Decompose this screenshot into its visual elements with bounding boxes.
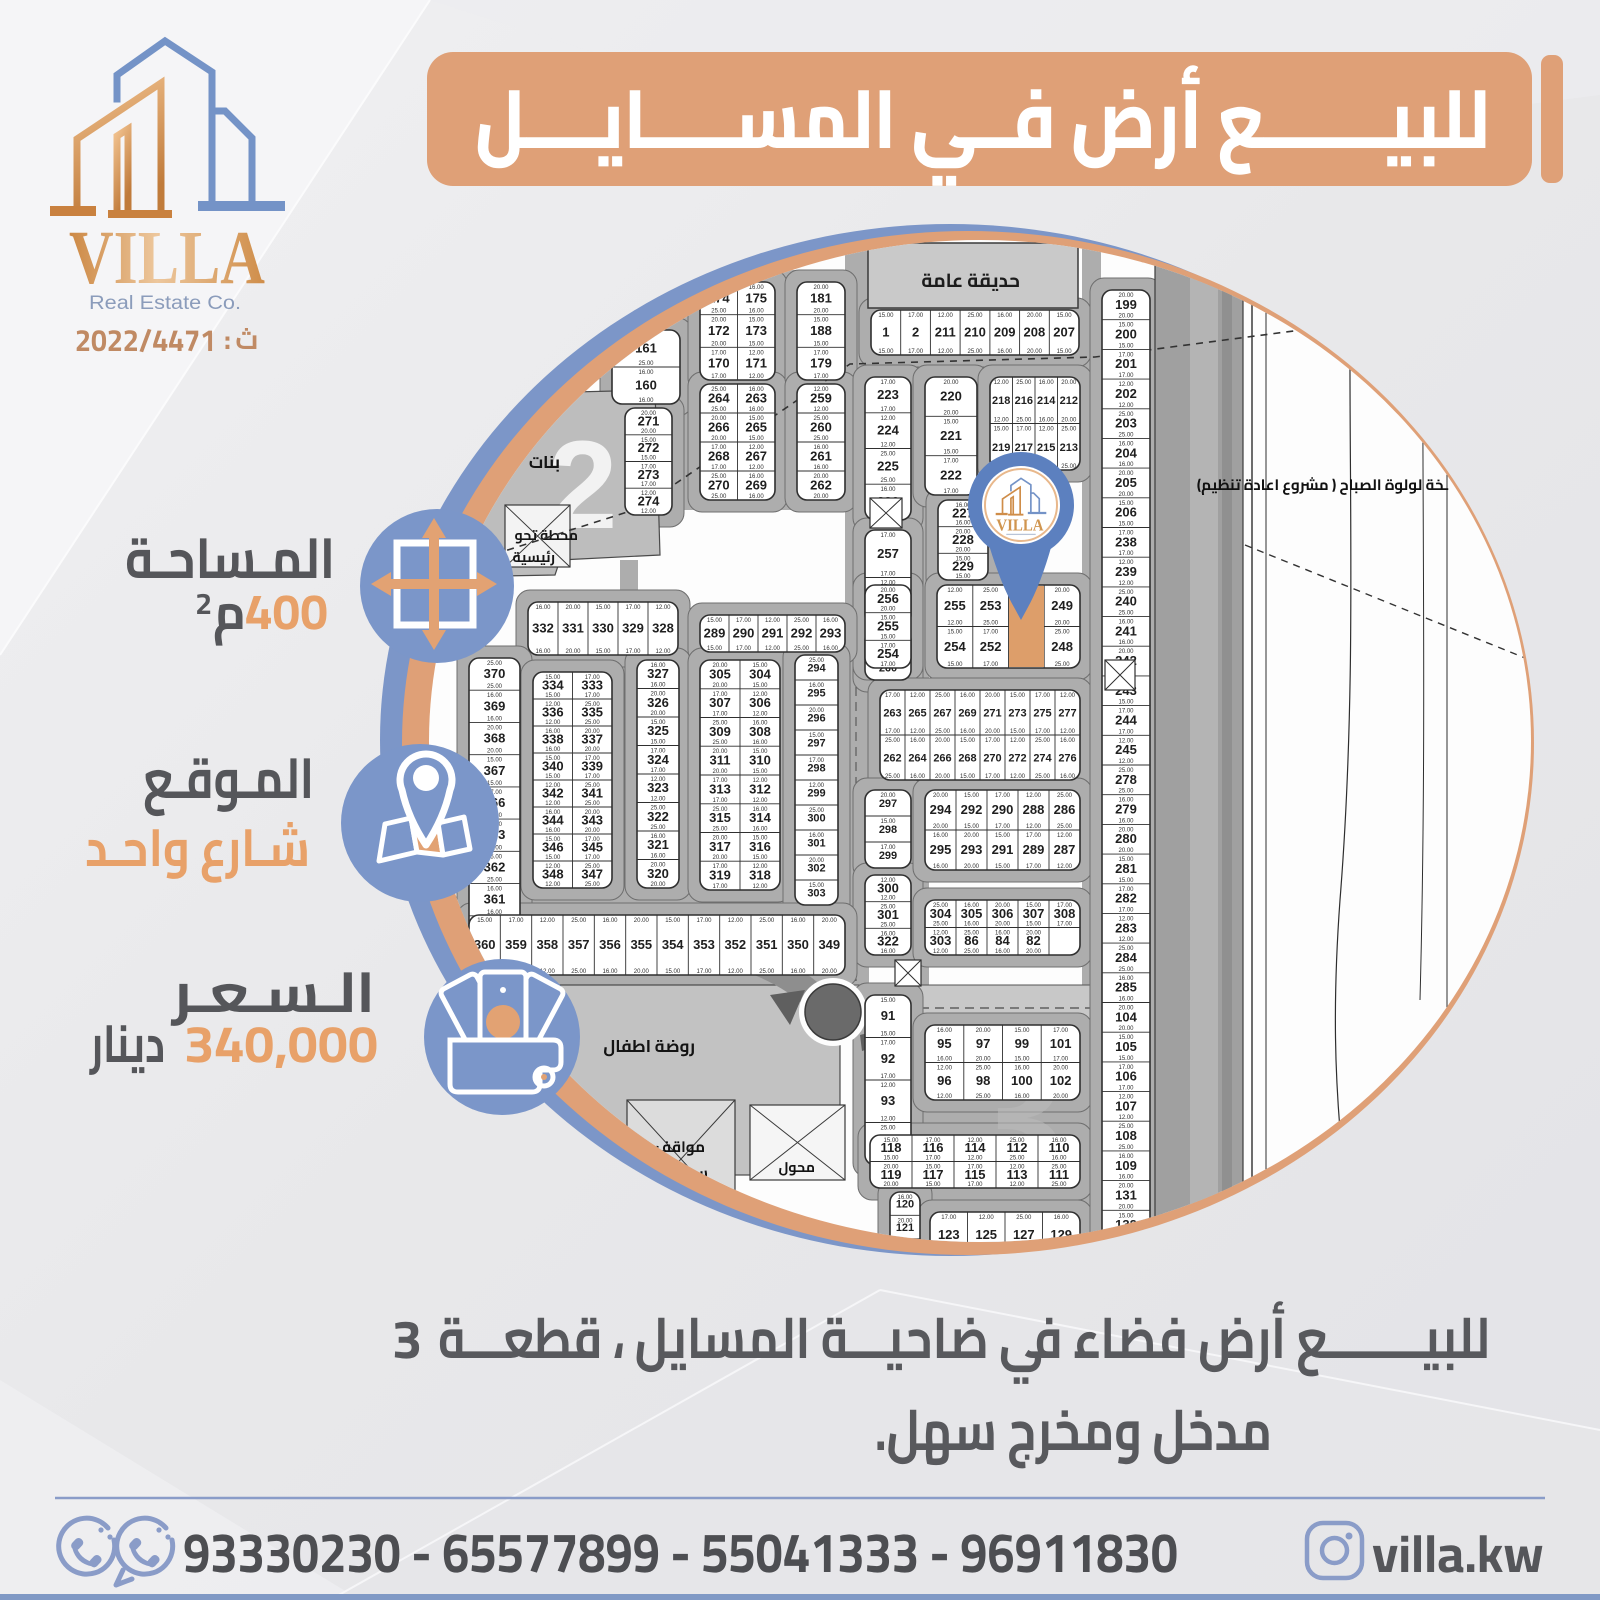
svg-text:289: 289 [1023, 842, 1045, 857]
svg-text:16.00: 16.00 [790, 969, 806, 975]
svg-text:16.00: 16.00 [960, 693, 976, 699]
svg-text:17.00: 17.00 [880, 533, 896, 539]
svg-text:15.00: 15.00 [813, 341, 829, 347]
svg-text:25.00: 25.00 [794, 618, 810, 624]
svg-text:17.00: 17.00 [813, 374, 829, 380]
svg-text:15.00: 15.00 [964, 793, 980, 799]
svg-text:12.00: 12.00 [938, 349, 954, 355]
svg-text:205: 205 [1115, 475, 1137, 490]
svg-text:25.00: 25.00 [1118, 1145, 1134, 1151]
svg-text:25.00: 25.00 [967, 349, 983, 355]
svg-text:123: 123 [938, 1227, 960, 1242]
svg-text:25.00: 25.00 [885, 738, 901, 744]
svg-text:16.00: 16.00 [933, 833, 949, 839]
svg-text:266: 266 [933, 753, 951, 765]
svg-text:16.00: 16.00 [752, 807, 768, 813]
svg-text:15.00: 15.00 [960, 738, 976, 744]
svg-text:353: 353 [693, 937, 715, 952]
svg-text:15.00: 15.00 [878, 349, 894, 355]
svg-text:16.00: 16.00 [995, 949, 1011, 955]
svg-text:15.00: 15.00 [1118, 1056, 1134, 1062]
svg-text:16.00: 16.00 [1118, 1175, 1134, 1181]
svg-text:209: 209 [994, 325, 1016, 340]
svg-text:25.00: 25.00 [964, 931, 980, 937]
svg-text:16.00: 16.00 [1118, 462, 1134, 468]
svg-text:VILLA: VILLA [996, 516, 1043, 535]
svg-text:12.00: 12.00 [1026, 793, 1042, 799]
svg-text:15.00: 15.00 [1118, 323, 1134, 329]
svg-text:12.00: 12.00 [809, 783, 825, 789]
svg-text:20.00: 20.00 [1118, 492, 1134, 498]
svg-text:16.00: 16.00 [933, 864, 949, 870]
svg-text:16.00: 16.00 [880, 949, 896, 955]
svg-text:17.00: 17.00 [943, 459, 959, 465]
svg-text:245: 245 [1115, 742, 1137, 757]
svg-text:16.00: 16.00 [487, 887, 503, 893]
svg-text:12.00: 12.00 [765, 618, 781, 624]
svg-text:15.00: 15.00 [1014, 1057, 1030, 1063]
svg-text:367: 367 [484, 763, 506, 778]
svg-text:12.00: 12.00 [749, 350, 765, 356]
svg-text:16.00: 16.00 [1118, 1154, 1134, 1160]
svg-text:25.00: 25.00 [712, 807, 728, 813]
svg-text:15.00: 15.00 [1118, 343, 1134, 349]
svg-text:160: 160 [635, 378, 657, 393]
svg-text:257: 257 [877, 546, 899, 561]
svg-text:17.00: 17.00 [880, 572, 896, 578]
svg-text:16.00: 16.00 [752, 721, 768, 727]
svg-text:17.00: 17.00 [696, 918, 712, 924]
svg-text:15.00: 15.00 [545, 675, 561, 681]
svg-text:15.00: 15.00 [707, 618, 723, 624]
svg-text:20.00: 20.00 [955, 547, 971, 553]
svg-text:15.00: 15.00 [925, 1182, 941, 1188]
svg-text:211: 211 [935, 325, 956, 340]
svg-text:25.00: 25.00 [1057, 824, 1073, 830]
svg-text:25.00: 25.00 [983, 621, 999, 627]
svg-text:292: 292 [961, 802, 983, 817]
svg-text:15.00: 15.00 [925, 1165, 941, 1171]
svg-text:12.00: 12.00 [1009, 1182, 1025, 1188]
svg-text:15.00: 15.00 [955, 556, 971, 562]
svg-text:16.00: 16.00 [1118, 976, 1134, 982]
svg-text:16.00: 16.00 [1060, 774, 1076, 780]
svg-text:16.00: 16.00 [487, 716, 503, 722]
svg-text:12.00: 12.00 [880, 878, 896, 884]
svg-text:12.00: 12.00 [910, 729, 926, 735]
svg-text:17.00: 17.00 [880, 1041, 896, 1047]
svg-text:20.00: 20.00 [712, 683, 728, 689]
svg-text:17.00: 17.00 [1057, 903, 1073, 909]
svg-text:291: 291 [992, 842, 1014, 857]
svg-text:272: 272 [1008, 753, 1026, 765]
svg-text:299: 299 [807, 788, 825, 800]
svg-text:20.00: 20.00 [809, 858, 825, 864]
svg-text:285: 285 [1115, 980, 1137, 995]
svg-text:12.00: 12.00 [1118, 916, 1134, 922]
svg-text:131: 131 [1115, 1188, 1137, 1203]
svg-text:15.00: 15.00 [883, 1156, 899, 1162]
svg-text:17.00: 17.00 [941, 1215, 957, 1221]
svg-text:12.00: 12.00 [752, 864, 768, 870]
svg-text:15.00: 15.00 [994, 427, 1010, 433]
svg-text:17.00: 17.00 [712, 884, 728, 890]
svg-text:16.00: 16.00 [813, 445, 829, 451]
svg-text:17.00: 17.00 [885, 693, 901, 699]
svg-text:20.00: 20.00 [880, 607, 896, 613]
svg-text:292: 292 [791, 626, 813, 641]
svg-text:16.00: 16.00 [749, 387, 765, 393]
svg-text:20.00: 20.00 [1118, 471, 1134, 477]
svg-text:15.00: 15.00 [883, 1138, 899, 1144]
svg-text:282: 282 [1115, 891, 1137, 906]
svg-text:25.00: 25.00 [638, 361, 654, 367]
svg-text:12.00: 12.00 [1118, 560, 1134, 566]
svg-text:20.00: 20.00 [712, 769, 728, 775]
svg-text:15.00: 15.00 [665, 918, 681, 924]
svg-text:127: 127 [1013, 1227, 1035, 1242]
svg-text:170: 170 [708, 356, 730, 371]
svg-text:25.00: 25.00 [880, 1126, 896, 1132]
svg-text:265: 265 [908, 708, 926, 720]
svg-text:207: 207 [1053, 325, 1075, 340]
svg-text:16.00: 16.00 [937, 1028, 953, 1034]
svg-text:20.00: 20.00 [933, 793, 949, 799]
svg-text:369: 369 [484, 698, 506, 713]
svg-text:100: 100 [1011, 1073, 1033, 1088]
svg-text:12.00: 12.00 [994, 380, 1010, 386]
svg-text:15.00: 15.00 [752, 836, 768, 842]
svg-text:173: 173 [745, 323, 767, 338]
svg-text:199: 199 [1115, 297, 1137, 312]
svg-text:20.00: 20.00 [995, 922, 1011, 928]
svg-text:25.00: 25.00 [794, 646, 810, 652]
svg-text:25.00: 25.00 [585, 783, 601, 789]
svg-text:15.00: 15.00 [880, 616, 896, 622]
svg-text:248: 248 [1051, 639, 1073, 654]
svg-text:20.00: 20.00 [1118, 293, 1134, 299]
svg-text:355: 355 [630, 937, 652, 952]
svg-text:25.00: 25.00 [1051, 1182, 1067, 1188]
svg-text:25.00: 25.00 [933, 903, 949, 909]
svg-text:252: 252 [980, 639, 1002, 654]
svg-text:222: 222 [940, 467, 962, 482]
svg-text:275: 275 [1033, 708, 1051, 720]
svg-text:20.00: 20.00 [487, 749, 503, 755]
svg-text:12.00: 12.00 [540, 918, 556, 924]
svg-text:16.00: 16.00 [545, 747, 561, 753]
svg-text:17.00: 17.00 [1053, 1028, 1069, 1034]
svg-text:15.00: 15.00 [1010, 693, 1026, 699]
svg-text:12.00: 12.00 [1026, 824, 1042, 830]
svg-text:12.00: 12.00 [728, 969, 744, 975]
svg-text:278: 278 [1115, 772, 1137, 787]
svg-text:20.00: 20.00 [565, 649, 581, 655]
svg-text:17.00: 17.00 [712, 864, 728, 870]
svg-text:213: 213 [1060, 442, 1078, 454]
svg-text:16.00: 16.00 [964, 903, 980, 909]
svg-text:203: 203 [1115, 416, 1137, 431]
svg-text:12.00: 12.00 [641, 491, 657, 497]
svg-text:17.00: 17.00 [813, 350, 829, 356]
svg-text:25.00: 25.00 [585, 702, 601, 708]
svg-text:20.00: 20.00 [565, 605, 581, 611]
svg-text:264: 264 [908, 753, 927, 765]
svg-text:293: 293 [961, 842, 983, 857]
svg-text:20.00: 20.00 [1118, 827, 1134, 833]
svg-text:17.00: 17.00 [712, 798, 728, 804]
svg-text:25.00: 25.00 [571, 969, 587, 975]
svg-text:286: 286 [1054, 802, 1076, 817]
svg-text:25.00: 25.00 [1055, 630, 1071, 636]
svg-text:171: 171 [745, 356, 767, 371]
svg-text:20.00: 20.00 [883, 1165, 899, 1171]
svg-text:20.00: 20.00 [897, 1218, 913, 1224]
svg-text:25.00: 25.00 [935, 693, 951, 699]
svg-text:25.00: 25.00 [1051, 1165, 1067, 1171]
svg-text:25.00: 25.00 [571, 918, 587, 924]
svg-text:20.00: 20.00 [711, 416, 727, 422]
svg-text:20.00: 20.00 [964, 833, 980, 839]
svg-text:300: 300 [807, 813, 825, 825]
svg-text:17.00: 17.00 [508, 918, 524, 924]
svg-text:220: 220 [940, 389, 962, 404]
svg-text:17.00: 17.00 [712, 712, 728, 718]
svg-text:17.00: 17.00 [585, 855, 601, 861]
svg-text:12.00: 12.00 [752, 692, 768, 698]
svg-text:15.00: 15.00 [1057, 349, 1073, 355]
svg-text:240: 240 [1115, 594, 1137, 609]
svg-text:25.00: 25.00 [711, 474, 727, 480]
svg-text:12.00: 12.00 [967, 1156, 983, 1162]
svg-text:17.00: 17.00 [1016, 427, 1032, 433]
svg-text:20.00: 20.00 [650, 692, 666, 698]
svg-text:25.00: 25.00 [935, 729, 951, 735]
svg-text:20.00: 20.00 [1053, 1066, 1069, 1072]
svg-text:17.00: 17.00 [983, 662, 999, 668]
svg-text:12.00: 12.00 [1010, 774, 1026, 780]
svg-text:210: 210 [964, 325, 986, 340]
svg-text:17.00: 17.00 [1118, 1065, 1134, 1071]
svg-text:16.00: 16.00 [1014, 1094, 1030, 1100]
svg-text:17.00: 17.00 [1118, 551, 1134, 557]
svg-text:25.00: 25.00 [976, 1066, 992, 1072]
svg-text:16.00: 16.00 [749, 474, 765, 480]
svg-text:17.00: 17.00 [1057, 922, 1073, 928]
svg-text:25.00: 25.00 [711, 407, 727, 413]
svg-text:25.00: 25.00 [1118, 967, 1134, 973]
svg-text:25.00: 25.00 [1118, 946, 1134, 952]
svg-text:361: 361 [484, 892, 506, 907]
svg-text:93: 93 [881, 1093, 895, 1108]
svg-text:221: 221 [940, 428, 962, 443]
svg-text:208: 208 [1024, 325, 1046, 340]
svg-text:295: 295 [807, 688, 825, 700]
svg-text:25.00: 25.00 [759, 918, 775, 924]
svg-text:17.00: 17.00 [983, 630, 999, 636]
svg-text:25.00: 25.00 [1035, 738, 1051, 744]
svg-text:20.00: 20.00 [813, 494, 829, 500]
svg-text:16.00: 16.00 [964, 922, 980, 928]
svg-text:15.00: 15.00 [1118, 700, 1134, 706]
svg-text:20.00: 20.00 [976, 1028, 992, 1034]
svg-text:17.00: 17.00 [585, 693, 601, 699]
svg-text:12.00: 12.00 [545, 882, 561, 888]
svg-text:368: 368 [484, 731, 506, 746]
svg-text:12.00: 12.00 [910, 693, 926, 699]
svg-text:16.00: 16.00 [880, 487, 896, 493]
svg-text:17.00: 17.00 [711, 350, 727, 356]
svg-text:15.00: 15.00 [960, 774, 976, 780]
svg-text:12.00: 12.00 [1009, 1165, 1025, 1171]
svg-text:20.00: 20.00 [935, 774, 951, 780]
svg-text:25.00: 25.00 [711, 494, 727, 500]
svg-text:17.00: 17.00 [641, 465, 657, 471]
svg-text:17.00: 17.00 [711, 465, 727, 471]
svg-text:12.00: 12.00 [937, 1094, 953, 1100]
svg-text:25.00: 25.00 [813, 436, 829, 442]
svg-text:15.00: 15.00 [1118, 857, 1134, 863]
svg-text:16.00: 16.00 [749, 309, 765, 315]
svg-text:270: 270 [983, 753, 1001, 765]
svg-text:20.00: 20.00 [487, 725, 503, 731]
svg-text:15.00: 15.00 [641, 456, 657, 462]
svg-text:238: 238 [1115, 534, 1137, 549]
svg-text:15.00: 15.00 [943, 450, 959, 456]
svg-text:20.00: 20.00 [1053, 1094, 1069, 1100]
svg-text:15.00: 15.00 [477, 918, 493, 924]
svg-text:301: 301 [807, 838, 825, 850]
svg-text:12.00: 12.00 [933, 931, 949, 937]
svg-text:96: 96 [937, 1073, 951, 1088]
svg-text:25.00: 25.00 [650, 806, 666, 812]
svg-text:17.00: 17.00 [880, 407, 896, 413]
svg-text:16.00: 16.00 [823, 646, 839, 652]
svg-text:17.00: 17.00 [625, 649, 641, 655]
svg-text:25.00: 25.00 [1035, 774, 1051, 780]
svg-text:15.00: 15.00 [880, 634, 896, 640]
svg-text:25.00: 25.00 [712, 740, 728, 746]
svg-text:296: 296 [807, 713, 825, 725]
svg-text:16.00: 16.00 [650, 683, 666, 689]
svg-text:303: 303 [807, 888, 825, 900]
svg-text:25.00: 25.00 [967, 313, 983, 319]
svg-text:25.00: 25.00 [1009, 1138, 1025, 1144]
svg-text:20.00: 20.00 [935, 738, 951, 744]
svg-text:25.00: 25.00 [1016, 380, 1032, 386]
svg-text:224: 224 [877, 423, 899, 438]
svg-text:217: 217 [1015, 442, 1033, 454]
svg-text:15.00: 15.00 [641, 438, 657, 444]
svg-text:15.00: 15.00 [995, 864, 1011, 870]
svg-text:17.00: 17.00 [585, 774, 601, 780]
svg-text:20.00: 20.00 [711, 436, 727, 442]
svg-text:102: 102 [1050, 1073, 1072, 1088]
svg-text:356: 356 [599, 937, 621, 952]
svg-text:12.00: 12.00 [545, 702, 561, 708]
svg-text:218: 218 [992, 395, 1010, 407]
svg-text:20.00: 20.00 [880, 793, 896, 799]
svg-text:15.00: 15.00 [1026, 903, 1042, 909]
svg-text:269: 269 [958, 708, 976, 720]
svg-text:25.00: 25.00 [880, 452, 896, 458]
svg-text:17.00: 17.00 [641, 482, 657, 488]
svg-text:254: 254 [944, 639, 966, 654]
svg-text:12.00: 12.00 [880, 1117, 896, 1123]
svg-text:172: 172 [708, 323, 730, 338]
svg-text:16.00: 16.00 [997, 349, 1013, 355]
svg-text:295: 295 [930, 842, 952, 857]
svg-text:12.00: 12.00 [1118, 738, 1134, 744]
svg-text:12.00: 12.00 [728, 918, 744, 924]
svg-text:15.00: 15.00 [943, 419, 959, 425]
svg-text:281: 281 [1115, 861, 1137, 876]
svg-text:279: 279 [1115, 802, 1137, 817]
svg-text:101: 101 [1050, 1036, 1072, 1051]
svg-text:20.00: 20.00 [1061, 418, 1077, 424]
svg-text:249: 249 [1051, 598, 1073, 613]
svg-text:16.00: 16.00 [1060, 738, 1076, 744]
svg-text:262: 262 [883, 753, 901, 765]
svg-text:25.00: 25.00 [487, 684, 503, 690]
svg-text:12.00: 12.00 [752, 798, 768, 804]
svg-text:276: 276 [1058, 753, 1076, 765]
svg-text:359: 359 [505, 937, 527, 952]
svg-text:16.00: 16.00 [602, 969, 618, 975]
svg-text:201: 201 [1115, 356, 1137, 371]
svg-text:107: 107 [1115, 1098, 1137, 1113]
svg-text:25.00: 25.00 [1061, 464, 1077, 470]
svg-text:20.00: 20.00 [1118, 314, 1134, 320]
svg-text:25.00: 25.00 [1061, 427, 1077, 433]
svg-text:17.00: 17.00 [650, 768, 666, 774]
svg-text:105: 105 [1115, 1039, 1137, 1054]
svg-text:17.00: 17.00 [1035, 693, 1051, 699]
svg-text:25.00: 25.00 [585, 801, 601, 807]
svg-text:17.00: 17.00 [1118, 729, 1134, 735]
svg-text:20.00: 20.00 [585, 747, 601, 753]
svg-text:17.00: 17.00 [985, 774, 1001, 780]
svg-text:287: 287 [1054, 842, 1076, 857]
svg-text:20.00: 20.00 [985, 693, 1001, 699]
svg-text:92: 92 [881, 1051, 895, 1066]
svg-text:20.00: 20.00 [985, 729, 1001, 735]
svg-text:15.00: 15.00 [707, 646, 723, 652]
svg-text:12.00: 12.00 [655, 605, 671, 611]
svg-text:354: 354 [662, 937, 684, 952]
svg-text:15.00: 15.00 [1010, 729, 1026, 735]
svg-text:20.00: 20.00 [813, 285, 829, 291]
svg-text:15.00: 15.00 [947, 630, 963, 636]
svg-text:12.00: 12.00 [880, 896, 896, 902]
svg-text:17.00: 17.00 [908, 349, 924, 355]
svg-text:VILLA: VILLA [69, 216, 265, 300]
svg-text:95: 95 [937, 1036, 951, 1051]
svg-text:17.00: 17.00 [1118, 373, 1134, 379]
svg-text:17.00: 17.00 [1118, 887, 1134, 893]
svg-text:20.00: 20.00 [933, 824, 949, 830]
svg-text:15.00: 15.00 [595, 605, 611, 611]
svg-text:16.00: 16.00 [960, 729, 976, 735]
svg-text:16.00: 16.00 [937, 1057, 953, 1063]
svg-text:16.00: 16.00 [1118, 818, 1134, 824]
svg-text:20.00: 20.00 [1118, 649, 1134, 655]
svg-text:16.00: 16.00 [1051, 1156, 1067, 1162]
svg-text:15.00: 15.00 [880, 1032, 896, 1038]
svg-text:20.00: 20.00 [585, 810, 601, 816]
svg-text:25.00: 25.00 [487, 878, 503, 884]
svg-text:25.00: 25.00 [487, 661, 503, 667]
